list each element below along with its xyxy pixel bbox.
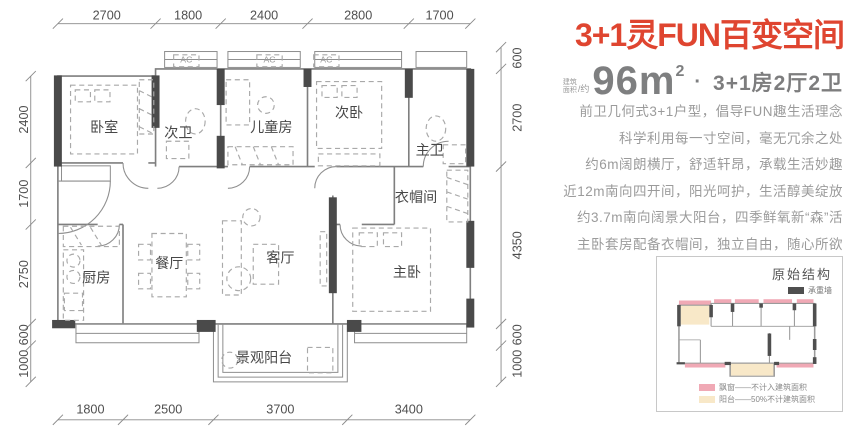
layout-spec: 3+1房2厅2卫 bbox=[713, 67, 843, 101]
dim-top-3: 2800 bbox=[344, 9, 372, 23]
room-label-cloak: 衣帽间 bbox=[395, 189, 437, 205]
dim-bottom-0: 1800 bbox=[76, 403, 104, 417]
room-label-master: 主卧 bbox=[393, 264, 421, 280]
bay-window-swatch bbox=[699, 384, 715, 391]
dim-top-1: 1800 bbox=[174, 9, 202, 23]
doors bbox=[58, 141, 449, 246]
dim-left-1: 1700 bbox=[17, 180, 31, 208]
desc-line: 约6m阔朗横厅，舒适轩昂，承载生活妙趣 bbox=[563, 152, 843, 179]
area-row: 建筑 面积 /约 96m2 · 3+1房2厅2卫 bbox=[563, 52, 843, 101]
ac-unit-label: AC bbox=[320, 55, 332, 65]
inset-legend: 飘窗——不计入建筑面积 阳台——50%不计建筑面积 bbox=[699, 381, 815, 405]
dim-right-3: 600 bbox=[511, 324, 525, 345]
room-label-kitchen: 厨房 bbox=[82, 269, 110, 285]
room-labels: 卧室 次卫 儿童房 次卧 主卫 衣帽间 厨房 餐厅 客厅 主卧 景观阳台 AC … bbox=[82, 55, 444, 366]
dim-right-0: 600 bbox=[511, 47, 525, 68]
dim-right-1: 2700 bbox=[511, 104, 525, 132]
room-label-bath2: 次卫 bbox=[164, 125, 192, 141]
desc-line: 前卫几何式3+1户型，倡导FUN趣生活理念 bbox=[563, 99, 843, 126]
desc-line: 约3.7m南向阔景大阳台，四季鲜氧新“森”活 bbox=[563, 205, 843, 232]
room-label-bath1: 主卫 bbox=[416, 142, 444, 158]
room-label-dining: 餐厅 bbox=[155, 255, 183, 271]
windows bbox=[62, 52, 467, 382]
area-label-suffix: /约 bbox=[578, 82, 590, 95]
desc-line: 科学利用每一寸空间，毫无冗余之处 bbox=[563, 126, 843, 153]
page-title: 3+1灵FUN百变空间 bbox=[550, 10, 844, 56]
dim-bottom-3: 3400 bbox=[395, 403, 423, 417]
dim-top-2: 2400 bbox=[250, 9, 278, 23]
area-sup: 2 bbox=[675, 63, 684, 80]
balcony-swatch bbox=[699, 396, 715, 403]
original-structure-inset: 原始结构 承重墙 bbox=[656, 256, 843, 412]
dim-left-2: 2750 bbox=[17, 260, 31, 288]
inset-title: 原始结构 bbox=[772, 264, 832, 283]
flyer: 2700 1800 2400 2800 1700 1800 2500 3700 … bbox=[0, 0, 846, 429]
room-label-bedroom: 卧室 bbox=[90, 119, 118, 135]
desc-line: 主卧套房配备衣帽间，独立自由，随心所欲 bbox=[563, 232, 843, 259]
ac-unit-label: AC bbox=[263, 55, 275, 65]
dim-left-3: 600 bbox=[17, 324, 31, 345]
separator-dot: · bbox=[694, 71, 701, 94]
area-value: 96m2 bbox=[592, 52, 684, 101]
legend-bay-window: 飘窗——不计入建筑面积 bbox=[699, 381, 815, 393]
room-label-living: 客厅 bbox=[266, 249, 294, 265]
room-label-kids: 儿童房 bbox=[250, 119, 292, 135]
dim-right-2: 4350 bbox=[511, 231, 525, 259]
dim-bottom-1: 2500 bbox=[154, 403, 182, 417]
balcony-label: 阳台——50%不计建筑面积 bbox=[719, 394, 815, 405]
floorplan-svg: 2700 1800 2400 2800 1700 1800 2500 3700 … bbox=[0, 0, 530, 429]
mini-floorplan-svg bbox=[673, 295, 823, 383]
ac-unit-label: AC bbox=[180, 55, 192, 65]
area-label-line2: 面积 bbox=[563, 87, 577, 95]
room-label-bed2: 次卧 bbox=[335, 105, 363, 121]
legend-balcony: 阳台——50%不计建筑面积 bbox=[699, 393, 815, 405]
area-label-line1: 建筑 bbox=[563, 79, 577, 87]
bay-window-label: 飘窗——不计入建筑面积 bbox=[719, 382, 807, 393]
desc-line: 近12m南向四开间，阳光呵护，生活醇美绽放 bbox=[563, 179, 843, 206]
furniture bbox=[63, 55, 467, 373]
room-label-balcony: 景观阳台 bbox=[236, 350, 292, 366]
dim-top-4: 1700 bbox=[425, 9, 453, 23]
description: 前卫几何式3+1户型，倡导FUN趣生活理念 科学利用每一寸空间，毫无冗余之处 约… bbox=[563, 99, 843, 258]
dim-top-0: 2700 bbox=[93, 9, 121, 23]
dim-left-4: 1000 bbox=[17, 350, 31, 378]
dim-bottom-2: 3700 bbox=[266, 403, 294, 417]
dim-right-4: 1000 bbox=[511, 350, 525, 378]
bearing-wall-swatch bbox=[788, 287, 804, 294]
area-label: 建筑 面积 /约 bbox=[563, 79, 590, 101]
dim-left-0: 2400 bbox=[17, 105, 31, 133]
